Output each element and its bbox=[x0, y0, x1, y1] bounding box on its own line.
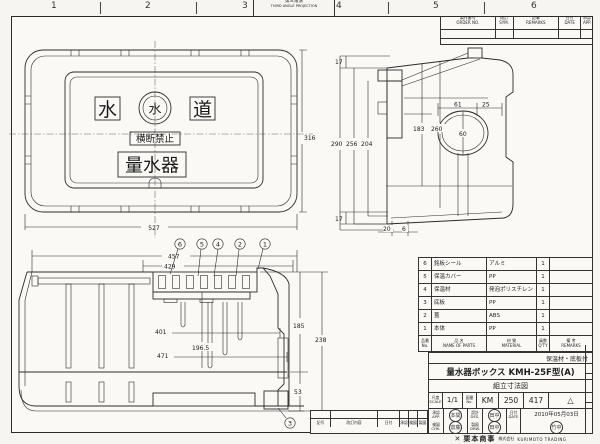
design-stamp: 田中 bbox=[488, 409, 501, 422]
bottom-strip-header-row: 記号 改訂内容 日付 承認 検図 製図 bbox=[311, 419, 427, 427]
balloon-1: 1 bbox=[263, 241, 267, 249]
zone-label-4: 4 bbox=[336, 1, 342, 11]
projection-method-note: 第三角法 THIRD ANGLE PROJECTION bbox=[253, 0, 335, 16]
bottom-section-view: 6 5 4 2 1 3 457 429 401 196.5 471 185 23… bbox=[12, 238, 344, 438]
check-label: 検図CHK. bbox=[429, 421, 444, 433]
scale-dwgno-row: 尺度SCALE 1/1 図番No. KM 250 417 △ bbox=[429, 393, 592, 409]
cover-logo-char: 水 bbox=[148, 103, 161, 118]
zone-label-1: 1 bbox=[51, 1, 57, 11]
balloon-6: 6 bbox=[178, 241, 182, 249]
design-label: 設計DES. bbox=[468, 409, 483, 421]
zone-tick bbox=[388, 2, 389, 14]
dim-61: 61 bbox=[454, 102, 462, 109]
rev-col-app: 承認APP. bbox=[581, 16, 593, 29]
zone-tick bbox=[484, 2, 485, 14]
dim-527: 527 bbox=[25, 214, 297, 232]
parts-row: 1本体 PP1 bbox=[419, 323, 592, 336]
balloon-callouts: 6 5 4 2 1 3 bbox=[170, 239, 295, 428]
dim-290: 290 bbox=[331, 141, 343, 148]
side-body-outline bbox=[378, 48, 513, 224]
bottom-revision-strip: 記号 改訂内容 日付 承認 検図 製図 bbox=[310, 410, 428, 434]
dim-429: 429 bbox=[164, 264, 176, 271]
dim-316: 316 bbox=[299, 50, 316, 212]
side-section-view: 17 290 256 204 183 260 61 25 60 17 20 6 bbox=[330, 40, 542, 245]
dim-401: 401 bbox=[155, 329, 167, 336]
approval-label: 承認APP. bbox=[429, 409, 444, 421]
side-dims: 17 290 256 204 183 260 61 25 60 17 20 6 bbox=[331, 56, 502, 236]
dim-6: 6 bbox=[402, 226, 406, 233]
dim-471: 471 bbox=[157, 353, 169, 360]
drawing-title-row: 組立寸法図 bbox=[429, 380, 592, 393]
cover-lettering: 水 水 道 横断禁止 量水器 bbox=[95, 92, 215, 177]
balloon-2: 2 bbox=[238, 241, 242, 249]
parts-row: 4保温材 発泡ポリスチレン1 bbox=[419, 284, 592, 297]
balloon-5: 5 bbox=[200, 241, 204, 249]
parts-row: 2蓋 ABS1 bbox=[419, 310, 592, 323]
parts-row: 3底板 PP1 bbox=[419, 297, 592, 310]
company-row: ✕ 栗本商事 株式会社 KURIMOTO TRADING bbox=[429, 434, 592, 444]
title-note-row: 保温材・底板付 bbox=[429, 353, 592, 364]
rev-col-date: 日付DATE bbox=[559, 16, 581, 29]
section-dims: 457 429 401 196.5 471 185 238 53 bbox=[32, 250, 328, 411]
approval-row-2: 検図CHK. 齋藤 製図DRW. 田中 竹中 bbox=[429, 421, 592, 434]
zone-label-2: 2 bbox=[145, 1, 151, 11]
drawing-date: 2010年05月03日 bbox=[521, 410, 592, 421]
parts-header-row: 品番No. 品 名NAME OF PARTS 材 質MATERIAL 員数Q'T… bbox=[419, 336, 592, 352]
zone-tick bbox=[196, 2, 197, 14]
dim-183: 183 bbox=[413, 126, 425, 133]
parts-row: 5保温カバー PP1 bbox=[419, 271, 592, 284]
dim-256: 256 bbox=[346, 141, 358, 148]
scale-label: 尺度SCALE bbox=[429, 393, 443, 408]
company-name-suffix: 株式会社 bbox=[498, 436, 514, 442]
dwg-code-1: KM bbox=[477, 393, 499, 408]
approval-row-1: 承認APP. 本間 設計DES. 田中 日付DATE 2010年05月03日 bbox=[429, 409, 592, 421]
dim-25: 25 bbox=[482, 102, 490, 109]
balloon-3: 3 bbox=[288, 420, 292, 428]
parts-row: 6銘板シール アルミ1 bbox=[419, 258, 592, 271]
drawing-title: 組立寸法図 bbox=[493, 381, 528, 391]
approval-stamp: 本間 bbox=[449, 409, 462, 422]
cover-meter-label: 量水器 bbox=[125, 156, 179, 177]
cover-char-left: 水 bbox=[98, 99, 117, 121]
dim-204: 204 bbox=[361, 141, 373, 148]
dim-53: 53 bbox=[294, 389, 302, 396]
rev-col-order: 製作番号ORDER NO. bbox=[441, 16, 496, 29]
bottom-strip-empty-row bbox=[311, 411, 427, 419]
dim-316-text: 316 bbox=[304, 135, 316, 142]
company-name-en: KURIMOTO TRADING bbox=[517, 437, 566, 442]
scale-value: 1/1 bbox=[443, 393, 463, 408]
dim-196-5: 196.5 bbox=[192, 345, 209, 352]
draft-label: 製図DRW. bbox=[468, 421, 483, 433]
parts-table: 6銘板シール アルミ1 5保温カバー PP1 4保温材 発泡ポリスチレン1 3底… bbox=[418, 257, 593, 352]
balloon-4: 4 bbox=[216, 241, 220, 249]
dwg-code-2: 250 bbox=[499, 393, 524, 408]
cover-warning-label: 横断禁止 bbox=[136, 133, 175, 145]
cover-char-right: 道 bbox=[193, 99, 212, 121]
title-note: 保温材・底板付 bbox=[546, 354, 588, 363]
section-body-right bbox=[153, 268, 289, 409]
section-body-left bbox=[19, 272, 304, 411]
zone-label-5: 5 bbox=[433, 1, 439, 11]
title-block: 保温材・底板付 量水器ボックス KMH-25F型(A) 組立寸法図 尺度SCAL… bbox=[428, 352, 593, 434]
dwg-no-label: 図番No. bbox=[463, 393, 477, 408]
dim-457: 457 bbox=[168, 254, 180, 261]
dim-17-bottom: 17 bbox=[335, 216, 343, 223]
product-title: 量水器ボックス KMH-25F型(A) bbox=[446, 366, 574, 378]
extra-stamp: 竹中 bbox=[550, 421, 563, 434]
dim-527-text: 527 bbox=[148, 225, 160, 232]
date-label: 日付DATE bbox=[507, 409, 521, 421]
zone-tick bbox=[100, 2, 101, 14]
draft-stamp: 田中 bbox=[488, 421, 501, 434]
title-block-side-strip bbox=[585, 345, 593, 434]
company-logo-icon: ✕ bbox=[455, 435, 461, 443]
dim-238: 238 bbox=[315, 337, 327, 344]
zone-label-6: 6 bbox=[531, 1, 537, 11]
plan-view: 水 水 道 横断禁止 量水器 527 316 bbox=[13, 40, 317, 245]
product-title-row: 量水器ボックス KMH-25F型(A) bbox=[429, 364, 592, 380]
rev-empty-row bbox=[441, 30, 593, 39]
company-name: 栗本商事 bbox=[463, 434, 495, 444]
dwg-code-3: 417 bbox=[524, 393, 549, 408]
rev-col-sym: 改訂SYM. bbox=[496, 16, 514, 29]
dim-17-top: 17 bbox=[335, 59, 343, 66]
rev-col-remarks: 記事REMARKS bbox=[514, 16, 560, 29]
zone-label-3: 3 bbox=[242, 1, 248, 11]
dim-20: 20 bbox=[383, 226, 391, 233]
projection-en: THIRD ANGLE PROJECTION bbox=[254, 5, 334, 9]
check-stamp: 齋藤 bbox=[449, 421, 462, 434]
dim-260: 260 bbox=[431, 126, 443, 133]
dim-185: 185 bbox=[293, 323, 305, 330]
dim-60: 60 bbox=[459, 131, 467, 138]
